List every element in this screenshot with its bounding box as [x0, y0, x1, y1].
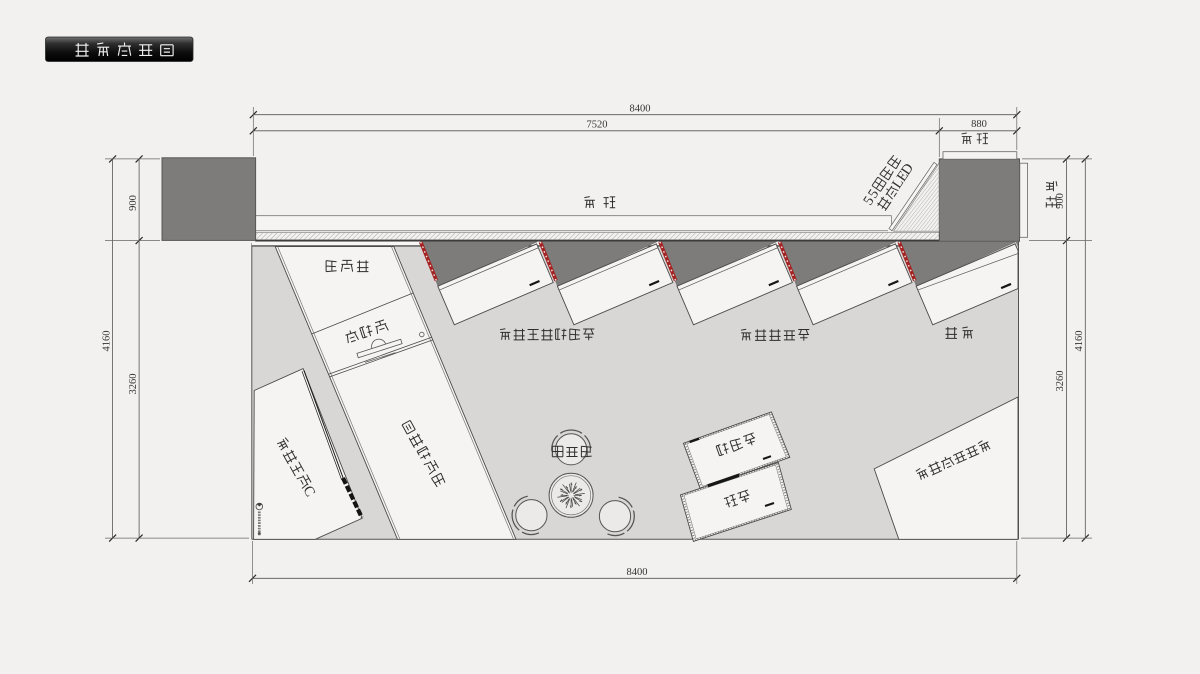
svg-text:900: 900: [128, 195, 139, 211]
svg-text:4160: 4160: [1074, 331, 1085, 352]
svg-text:880: 880: [971, 119, 987, 130]
svg-text:3260: 3260: [128, 374, 139, 395]
svg-text:8400: 8400: [627, 567, 648, 578]
svg-text:7520: 7520: [587, 119, 608, 130]
svg-text:8400: 8400: [630, 104, 651, 115]
svg-text:3260: 3260: [1055, 371, 1066, 392]
svg-text:4160: 4160: [101, 331, 112, 352]
